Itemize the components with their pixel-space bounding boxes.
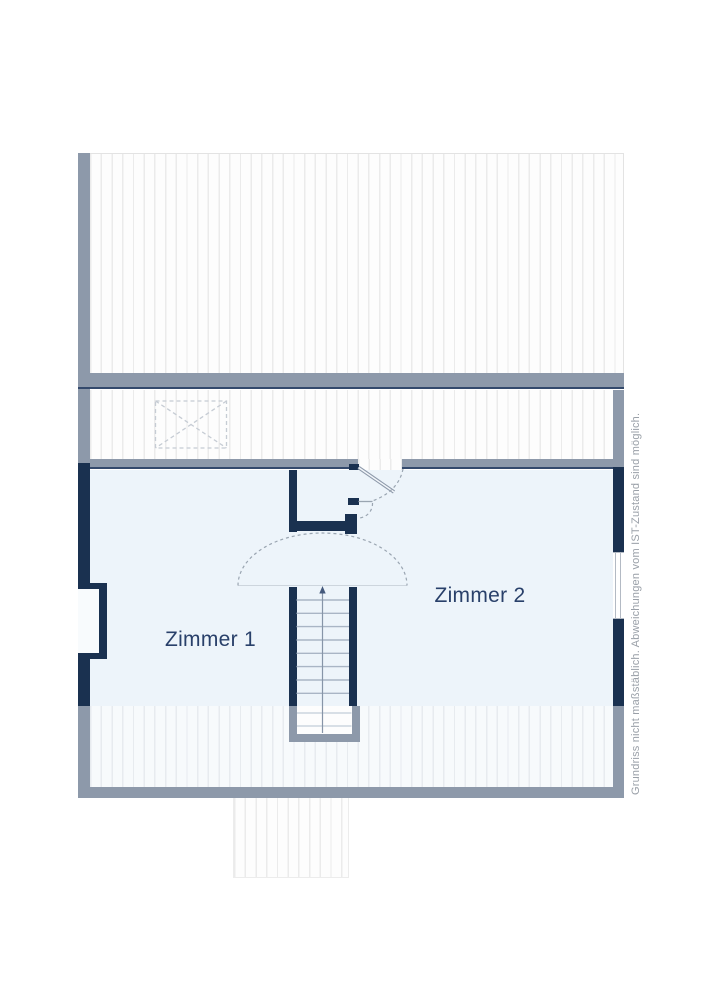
room-label-zimmer-1: Zimmer 1: [165, 628, 256, 652]
interior-door-swing: [359, 502, 373, 519]
floor-plan-canvas: Zimmer 1 Zimmer 2 Grundriss nicht maßstä…: [0, 0, 706, 1000]
entry-door-swing: [359, 468, 404, 501]
stair-headroom-arc: [238, 533, 407, 585]
disclaimer-text: Grundriss nicht maßstäblich. Abweichunge…: [627, 406, 645, 795]
plan-linework: [0, 0, 706, 1000]
room-label-zimmer-2: Zimmer 2: [434, 584, 525, 608]
chimney-symbol: [156, 401, 227, 448]
stair-direction-arrow: [319, 586, 325, 733]
stair-treads: [297, 600, 352, 726]
